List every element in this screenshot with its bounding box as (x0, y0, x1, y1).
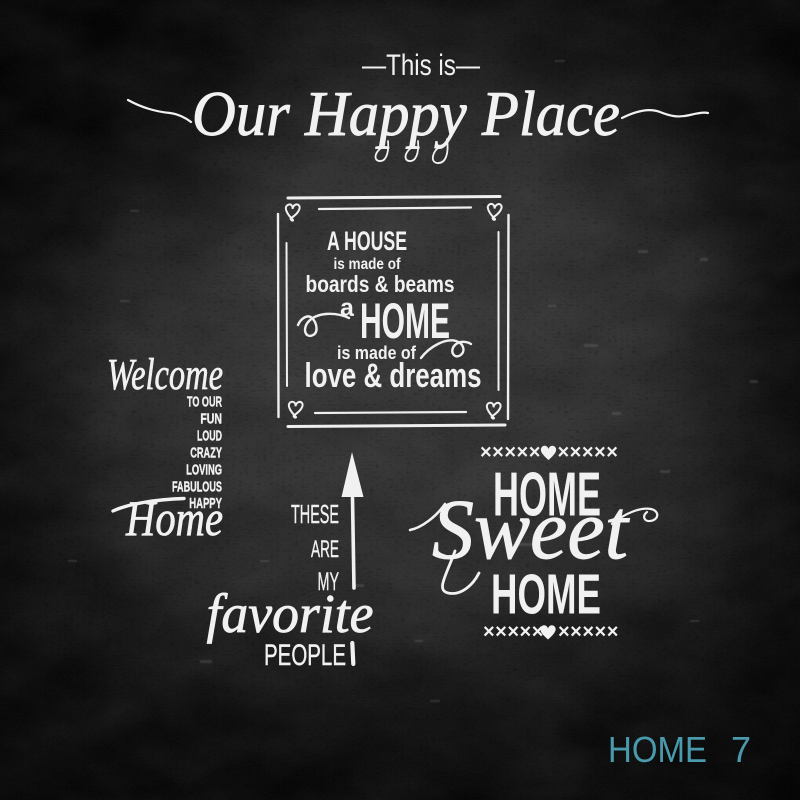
svg-text:—This is—: —This is— (362, 49, 480, 82)
svg-text:×××××: ××××× (483, 621, 544, 643)
svg-text:LOUD: LOUD (197, 429, 222, 445)
svg-text:HOME: HOME (491, 563, 601, 627)
svg-text:ARE: ARE (311, 536, 339, 563)
svg-text:favorite: favorite (207, 583, 374, 644)
svg-text:love & dreams: love & dreams (305, 357, 482, 395)
svg-text:LOVING: LOVING (186, 463, 222, 479)
svg-text:PEOPLE: PEOPLE (264, 639, 346, 672)
svg-text:FUN: FUN (200, 412, 222, 428)
svg-text:HOME: HOME (360, 293, 450, 349)
svg-text:A HOUSE: A HOUSE (327, 226, 407, 256)
svg-text:CRAZY: CRAZY (190, 446, 222, 462)
svg-text:Welcome: Welcome (107, 350, 223, 399)
svg-text:THESE: THESE (291, 499, 339, 529)
svg-text:HOME: HOME (608, 729, 707, 770)
svg-text:×××××: ××××× (558, 621, 619, 643)
svg-text:Our Happy Place: Our Happy Place (192, 79, 620, 149)
svg-text:TO OUR: TO OUR (187, 394, 222, 410)
svg-text:7: 7 (731, 729, 751, 770)
